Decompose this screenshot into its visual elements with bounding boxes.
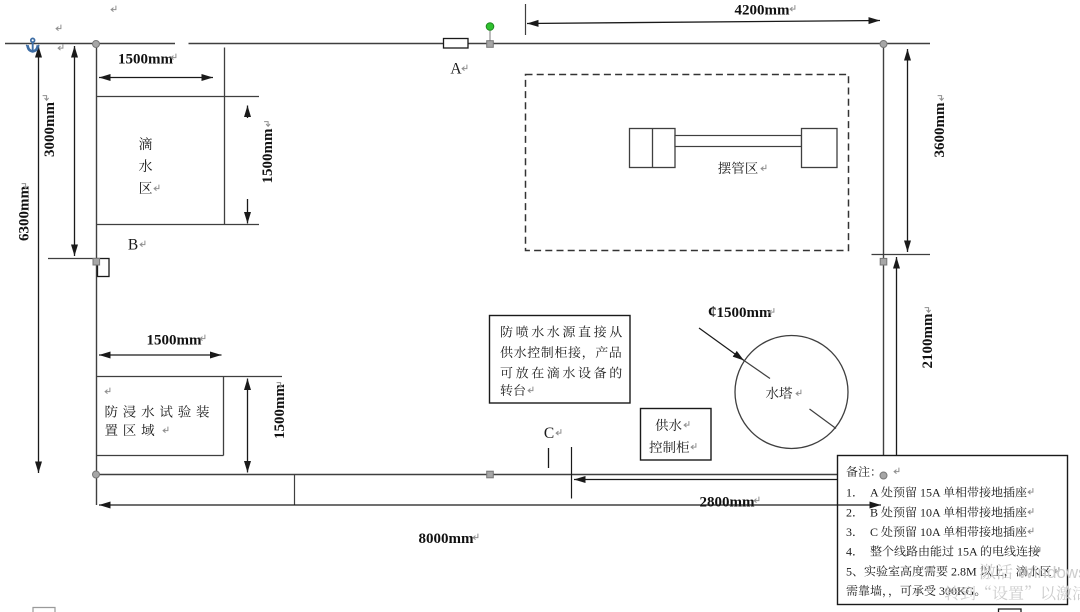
- svg-text:防喷水水源直接从: 防喷水水源直接从: [500, 322, 625, 341]
- svg-text:4． 整个线路由能过 15A 的电线连接: 4． 整个线路由能过 15A 的电线连接: [846, 543, 1040, 560]
- svg-text:控制柜: 控制柜: [649, 436, 690, 456]
- svg-text:B: B: [128, 237, 138, 254]
- svg-text:4200mm: 4200mm: [735, 3, 790, 19]
- svg-text:可放在滴水设备的: 可放在滴水设备的: [500, 363, 625, 382]
- svg-text:水塔: 水塔: [766, 382, 794, 402]
- svg-text:供水: 供水: [655, 414, 683, 434]
- svg-text:转到“设置”以激活: 转到“设置”以激活: [944, 581, 1080, 604]
- svg-text:1． A 处预留 15A 单相带接地插座: 1． A 处预留 15A 单相带接地插座: [846, 484, 1027, 501]
- svg-text:3000mm: 3000mm: [42, 102, 58, 157]
- svg-text:2100mm: 2100mm: [920, 313, 936, 368]
- svg-text:备注：: 备注：: [846, 463, 882, 480]
- svg-text:6300mm: 6300mm: [17, 186, 33, 241]
- svg-text:滴: 滴: [139, 134, 153, 154]
- svg-text:1500mm: 1500mm: [147, 333, 202, 349]
- svg-text:1500mm: 1500mm: [260, 128, 276, 183]
- svg-text:水: 水: [139, 156, 153, 176]
- svg-text:C: C: [544, 425, 554, 442]
- svg-text:1500mm: 1500mm: [118, 52, 173, 68]
- svg-text:¢1500mm: ¢1500mm: [708, 302, 772, 321]
- svg-text:供水控制柜接，产品: 供水控制柜接，产品: [500, 342, 622, 361]
- svg-text:2． B 处预留 10A 单相带接地插座: 2． B 处预留 10A 单相带接地插座: [846, 504, 1027, 521]
- svg-text:1500mm: 1500mm: [272, 384, 288, 439]
- svg-text:A: A: [450, 61, 462, 78]
- svg-text:8000mm: 8000mm: [419, 531, 474, 547]
- svg-text:激活 Windows: 激活 Windows: [979, 558, 1080, 583]
- svg-text:区: 区: [139, 178, 153, 198]
- svg-text:3600mm: 3600mm: [932, 102, 948, 157]
- svg-text:置区域: 置区域: [105, 419, 160, 439]
- svg-text:防浸水试验装: 防浸水试验装: [105, 401, 215, 421]
- svg-text:摆管区: 摆管区: [718, 157, 759, 177]
- svg-text:转台: 转台: [500, 380, 526, 399]
- svg-text:2800mm: 2800mm: [700, 495, 755, 511]
- svg-text:3． C 处预留 10A 单相带接地插座: 3． C 处预留 10A 单相带接地插座: [846, 523, 1027, 540]
